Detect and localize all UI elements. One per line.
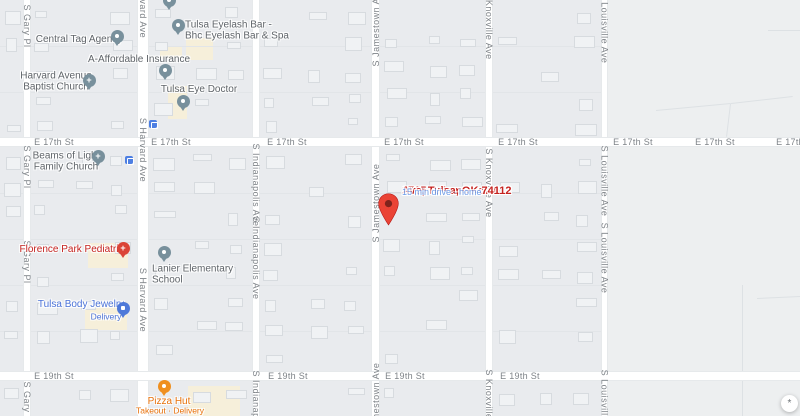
building-footprint (348, 326, 364, 334)
street-label-e-17th-st: E 17th St (695, 137, 735, 147)
poi-marker-unlabeled-poi-top[interactable] (163, 0, 176, 7)
building-footprint (308, 70, 320, 83)
street-label-e-17th-st: E 17th St (498, 137, 538, 147)
building-footprint (578, 181, 597, 194)
poi-label-tulsa-eyelash-bar[interactable]: Tulsa Eyelash Bar - Bhc Eyelash Bar & Sp… (185, 21, 289, 42)
medical-cross-icon: + (117, 242, 130, 255)
building-footprint (540, 393, 552, 405)
poi-marker-tulsa-eyelash-bar[interactable] (172, 19, 185, 32)
street-label-e-19th-st: E 19th St (500, 371, 540, 381)
building-footprint (386, 154, 400, 161)
building-footprint (311, 299, 325, 309)
street-label-s-louisville-ave: S Louisville Ave (600, 0, 610, 63)
building-footprint (195, 99, 209, 106)
street-label-s-louisville-ave: S Louisville Ave (600, 223, 610, 294)
building-footprint (309, 12, 327, 20)
building-footprint (266, 355, 283, 363)
building-footprint (4, 331, 18, 339)
building-footprint (225, 322, 243, 331)
parcel-line (31, 239, 137, 240)
street-label-e-17th-st: E 17th St (267, 137, 307, 147)
building-footprint (154, 182, 175, 192)
building-footprint (385, 39, 397, 48)
street-label-s-knoxville-ave: S Knoxville Ave (484, 0, 494, 60)
building-footprint (37, 121, 53, 131)
building-footprint (265, 300, 276, 312)
poi-marker-a-affordable-insurance[interactable] (159, 64, 172, 77)
building-footprint (429, 36, 440, 44)
street-label-e-17th-st: E 17th St (613, 137, 653, 147)
poi-marker-pizza-hut[interactable] (158, 380, 171, 393)
church-cross-icon: + (83, 74, 96, 87)
building-footprint (4, 183, 21, 197)
building-footprint (4, 388, 19, 399)
building-footprint (461, 267, 473, 275)
poi-marker-harvard-avenue-baptist-church[interactable]: + (83, 74, 96, 87)
building-footprint (6, 157, 21, 170)
street-label-s-gary-pl: S Gary Pl (22, 4, 32, 47)
parcel-line (0, 239, 23, 240)
building-footprint (226, 390, 247, 399)
building-footprint (110, 12, 130, 25)
poi-label-beams-of-light-family-church[interactable]: Beams of Light Family Church (33, 152, 100, 173)
church-cross-icon: + (92, 150, 105, 163)
poi-marker-beams-of-light-family-church[interactable]: + (92, 150, 105, 163)
building-footprint (228, 213, 238, 226)
building-footprint (460, 88, 471, 99)
street-label-s-louisville-ave: S Louisville Ave (600, 370, 610, 416)
street-label-s-knoxville-ave: S Knoxville Ave (484, 369, 494, 416)
building-footprint (113, 68, 128, 79)
building-footprint (36, 97, 51, 105)
building-footprint (263, 270, 278, 281)
poi-label-florence-park-pediatrics[interactable]: Florence Park Pediatrics (20, 245, 129, 256)
building-footprint (461, 159, 481, 170)
parcel-line (149, 331, 252, 332)
building-footprint (193, 392, 211, 403)
poi-label-a-affordable-insurance[interactable]: A-Affordable Insurance (88, 55, 190, 66)
building-footprint (229, 158, 246, 170)
building-footprint (111, 185, 122, 196)
open-field (608, 0, 800, 416)
poi-dot-icon (176, 23, 180, 27)
building-footprint (459, 290, 478, 301)
street-label-e-17th-st: E 17th St (34, 137, 74, 147)
street-s-gary-pl[interactable] (23, 0, 31, 416)
building-footprint (228, 70, 244, 80)
parcel-line (260, 92, 371, 93)
street-label-s-harvard-ave: S Harvard Ave (138, 118, 148, 182)
building-footprint (264, 98, 274, 108)
street-label-e-19th-st: E 19th St (385, 371, 425, 381)
path-line (742, 285, 743, 416)
building-footprint (348, 118, 358, 125)
building-footprint (225, 7, 238, 18)
building-footprint (110, 389, 129, 402)
building-footprint (385, 354, 398, 364)
street-label-e-17th-st: E 17th St (384, 137, 424, 147)
building-footprint (574, 36, 595, 48)
building-footprint (154, 298, 168, 310)
street-label-e-19th-st: E 19th St (34, 371, 74, 381)
building-footprint (578, 332, 593, 342)
building-footprint (227, 42, 241, 49)
building-footprint (573, 393, 589, 405)
building-footprint (384, 266, 395, 276)
building-footprint (35, 11, 47, 18)
building-footprint (426, 320, 447, 330)
building-footprint (196, 68, 217, 80)
building-footprint (498, 37, 517, 45)
building-footprint (576, 298, 597, 307)
building-footprint (385, 117, 398, 127)
poi-marker-tulsa-eye-doctor[interactable] (177, 95, 190, 108)
building-footprint (265, 325, 283, 336)
parcel-line (493, 92, 601, 93)
building-footprint (430, 160, 451, 171)
poi-dot-icon (163, 68, 167, 72)
poi-sublabel-pizza-hut[interactable]: Takeout · Delivery (136, 407, 204, 416)
poi-label-tulsa-eye-doctor[interactable]: Tulsa Eye Doctor (161, 85, 237, 96)
poi-marker-florence-park-pediatrics[interactable]: + (117, 242, 130, 255)
building-footprint (6, 38, 17, 52)
building-footprint (115, 205, 127, 214)
building-footprint (111, 121, 124, 129)
building-footprint (193, 154, 212, 161)
building-footprint (384, 388, 394, 398)
building-footprint (266, 121, 277, 133)
building-footprint (154, 103, 173, 116)
building-footprint (577, 13, 591, 24)
building-footprint (348, 12, 366, 25)
building-footprint (309, 187, 324, 197)
building-footprint (265, 215, 280, 225)
building-footprint (384, 61, 404, 72)
poi-dot-icon (167, 0, 171, 2)
street-label-s-jamestown-ave: S Jamestown Ave (371, 0, 381, 66)
building-footprint (312, 97, 329, 106)
street-label-s-jamestown-ave: S Jamestown Ave (371, 363, 381, 416)
street-label-s-gary-pl: S Gary Pl (22, 381, 32, 416)
building-footprint (195, 241, 209, 249)
building-footprint (344, 301, 356, 311)
street-label-e-17th-st: E 17th St (776, 137, 800, 147)
street-label-s-knoxville-ave: S Knoxville Ave (484, 148, 494, 217)
building-footprint (496, 124, 518, 133)
building-footprint (110, 156, 122, 166)
poi-label-central-tag-agency[interactable]: Central Tag Agency (36, 35, 123, 46)
building-footprint (541, 184, 552, 198)
parcel-line (493, 285, 601, 286)
building-footprint (577, 242, 597, 252)
building-footprint (462, 236, 474, 243)
building-footprint (346, 267, 357, 275)
building-footprint (37, 277, 49, 287)
transit-stop-icon[interactable] (149, 120, 157, 128)
building-footprint (430, 93, 440, 106)
building-footprint (153, 158, 175, 171)
building-footprint (228, 298, 243, 307)
building-footprint (348, 388, 365, 395)
poi-sublabel-tulsa-body-jewelry[interactable]: Delivery (91, 313, 122, 322)
building-footprint (575, 124, 597, 136)
building-footprint (6, 206, 21, 217)
street-label-e-19th-st: E 19th St (268, 371, 308, 381)
street-label-s-harvard-ave: S Harvard Ave (138, 0, 148, 38)
poi-label-harvard-avenue-baptist-church[interactable]: Harvard Avenue Baptist Church (20, 72, 92, 93)
building-footprint (579, 159, 591, 166)
street-label-s-indianapolis-ave: S Indianapolis Ave (251, 217, 261, 300)
building-footprint (387, 88, 407, 99)
building-footprint (76, 181, 93, 189)
building-footprint (426, 213, 447, 222)
parcel-line (380, 331, 485, 332)
building-footprint (263, 68, 282, 79)
parcel-line (380, 285, 485, 286)
building-footprint (345, 154, 362, 165)
building-footprint (430, 267, 450, 280)
map-control-button[interactable]: * (781, 395, 798, 412)
building-footprint (499, 330, 516, 344)
poi-label-lanier-elementary-school[interactable]: Lanier Elementary School (152, 265, 233, 286)
path-line (768, 30, 800, 31)
building-footprint (541, 72, 559, 82)
building-footprint (7, 125, 21, 132)
building-footprint (576, 215, 588, 227)
building-footprint (34, 205, 45, 215)
building-footprint (5, 11, 21, 25)
street-label-s-indianapolis-ave: S Indianapolis Ave (251, 144, 261, 227)
building-footprint (38, 180, 54, 188)
building-footprint (154, 211, 176, 218)
poi-dot-icon (181, 99, 185, 103)
street-label-e-17th-st: E 17th St (151, 137, 191, 147)
poi-marker-tulsa-body-jewelry[interactable] (117, 302, 130, 315)
building-footprint (266, 156, 285, 169)
building-footprint (264, 243, 282, 256)
building-footprint (111, 273, 124, 281)
building-footprint (194, 182, 215, 194)
destination-pin[interactable] (378, 193, 399, 226)
street-label-s-harvard-ave: S Harvard Ave (138, 268, 148, 332)
parcel-line (0, 285, 23, 286)
building-footprint (345, 73, 361, 83)
street-label-s-louisville-ave: S Louisville Ave (600, 146, 610, 217)
poi-dot-icon (115, 34, 119, 38)
building-footprint (460, 39, 476, 47)
building-footprint (499, 394, 515, 406)
building-footprint (425, 116, 441, 124)
destination-eta-home: 15 min drive · home (402, 187, 482, 197)
building-footprint (430, 66, 447, 78)
poi-marker-lanier-elementary-school[interactable] (158, 246, 171, 259)
map-canvas[interactable]: 1715 S Jamestown Ave, Tulsa, OK 74112 15… (0, 0, 800, 416)
building-footprint (349, 94, 361, 103)
building-footprint (498, 269, 519, 280)
restaurant-icon (162, 384, 166, 388)
building-footprint (429, 241, 440, 255)
building-footprint (80, 329, 98, 343)
building-footprint (156, 345, 173, 355)
destination-pin-shape (379, 194, 399, 225)
transit-stop-icon[interactable] (125, 156, 133, 164)
poi-label-tulsa-body-jewelry[interactable]: Tulsa Body Jewelry (38, 300, 124, 311)
building-footprint (110, 331, 120, 340)
parcel-line (493, 239, 601, 240)
building-footprint (542, 270, 561, 279)
building-footprint (155, 42, 168, 51)
building-footprint (499, 246, 518, 257)
building-footprint (37, 331, 50, 344)
building-footprint (459, 65, 475, 76)
building-footprint (348, 216, 361, 228)
building-footprint (197, 321, 217, 330)
building-footprint (544, 212, 559, 221)
building-footprint (6, 301, 18, 312)
poi-marker-central-tag-agency[interactable] (111, 30, 124, 43)
building-footprint (577, 272, 593, 284)
building-footprint (311, 326, 328, 339)
parcel-line (149, 239, 252, 240)
building-footprint (79, 390, 91, 400)
poi-dot-icon (162, 250, 166, 254)
parcel-line (260, 285, 371, 286)
building-footprint (155, 9, 171, 18)
building-footprint (579, 99, 593, 111)
street-label-s-gary-pl: S Gary Pl (22, 145, 32, 188)
shopping-bag-icon (121, 306, 125, 310)
building-footprint (345, 37, 362, 51)
parcel-line (260, 239, 371, 240)
building-footprint (462, 213, 480, 221)
building-footprint (462, 117, 483, 127)
street-label-s-indianapolis-ave: S Indianapolis Ave (251, 371, 261, 416)
asterisk-icon: * (788, 399, 792, 409)
building-footprint (230, 245, 242, 254)
building-footprint (383, 239, 400, 252)
